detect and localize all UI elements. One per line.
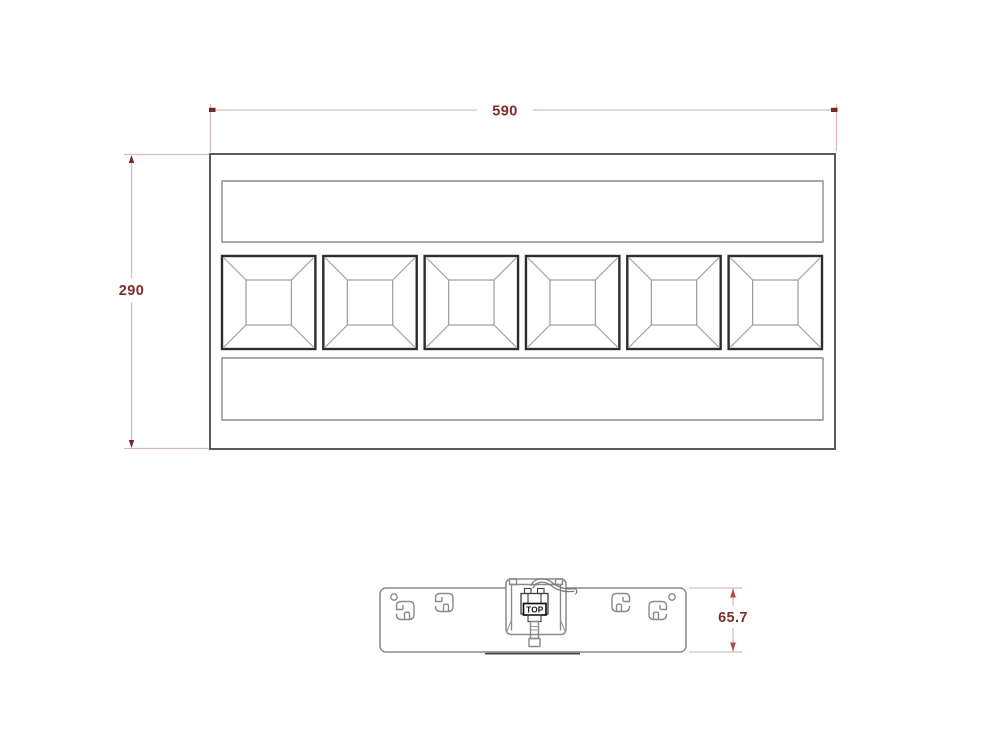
light-module [729, 256, 822, 349]
dimension-side-height: 65.7 [689, 588, 755, 652]
dimension-end-marker [831, 108, 838, 112]
dimension-height: 290 [110, 155, 209, 449]
dimension-width: 590 [209, 99, 838, 152]
light-module [323, 256, 416, 349]
side-view: TOP [380, 579, 686, 654]
light-module [627, 256, 720, 349]
top-channel [222, 181, 823, 242]
drawing-canvas: 590 290 [0, 0, 1000, 748]
width-dimension-label: 590 [492, 104, 517, 120]
dimension-arrow-up [730, 589, 736, 598]
bottom-channel [222, 358, 823, 420]
light-module [425, 256, 518, 349]
light-module [222, 256, 315, 349]
top-view [210, 154, 835, 449]
technical-drawing: 590 290 [0, 0, 1000, 748]
dimension-arrow-down [730, 643, 736, 652]
light-modules-row [222, 256, 822, 349]
light-module [526, 256, 619, 349]
dimension-end-marker [129, 440, 134, 448]
dimension-end-marker [129, 155, 134, 163]
side-height-dimension-label: 65.7 [718, 610, 748, 626]
dimension-end-marker [209, 108, 216, 112]
height-dimension-label: 290 [119, 283, 144, 299]
top-marking-label: TOP [526, 606, 544, 615]
